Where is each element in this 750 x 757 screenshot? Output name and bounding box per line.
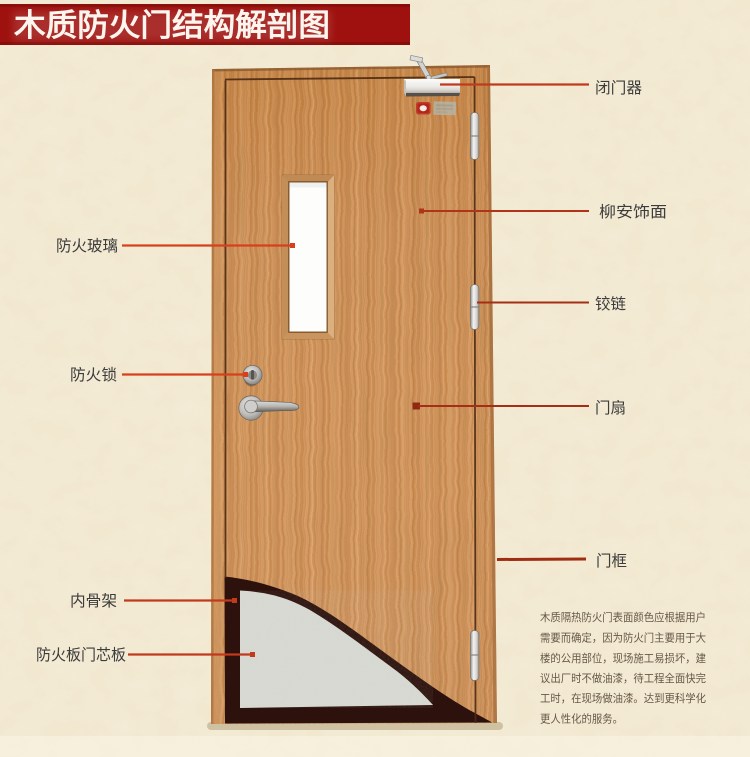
svg-text:门框: 门框	[596, 552, 627, 570]
svg-text:防火板门芯板: 防火板门芯板	[36, 646, 126, 664]
svg-text:防火锁: 防火锁	[70, 366, 117, 384]
svg-text:议出厂时不做油漆，待工程全面快完: 议出厂时不做油漆，待工程全面快完	[540, 671, 706, 685]
svg-text:楼的公用部位，现场施工易损坏，建: 楼的公用部位，现场施工易损坏，建	[540, 651, 706, 665]
svg-text:铰链: 铰链	[595, 295, 626, 313]
svg-text:木质防火门结构解剖图: 木质防火门结构解剖图	[13, 8, 330, 43]
svg-text:门扇: 门扇	[595, 399, 626, 417]
svg-text:工时，在现场做油漆。达到更科学化: 工时，在现场做油漆。达到更科学化	[540, 691, 706, 705]
svg-text:木质隔热防火门表面颜色应根据用户: 木质隔热防火门表面颜色应根据用户	[540, 610, 706, 624]
svg-text:更人性化的服务。: 更人性化的服务。	[540, 712, 623, 726]
svg-text:柳安饰面: 柳安饰面	[599, 203, 667, 221]
svg-text:闭门器: 闭门器	[595, 79, 642, 97]
svg-text:需要而确定，因为防火门主要用于大: 需要而确定，因为防火门主要用于大	[540, 631, 706, 645]
svg-text:防火玻璃: 防火玻璃	[56, 237, 118, 255]
svg-text:内骨架: 内骨架	[70, 592, 117, 610]
